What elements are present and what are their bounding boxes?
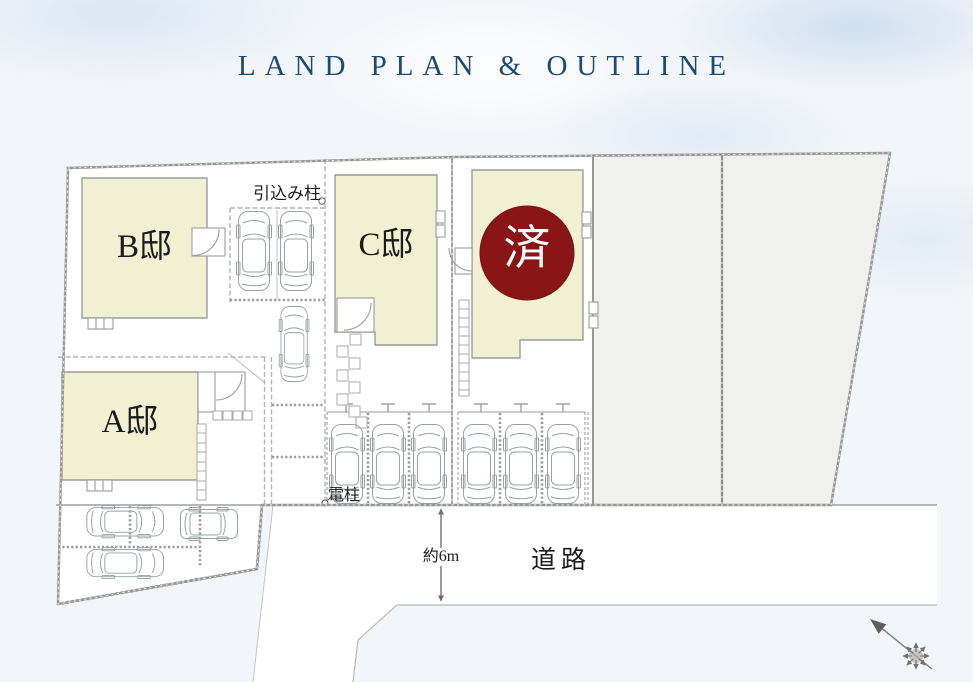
lot-b-label: B邸 xyxy=(82,229,207,265)
sold-badge-label: 済 xyxy=(480,224,574,276)
lot-a-label: A邸 xyxy=(62,404,198,440)
service-pole-label: 引込み柱 xyxy=(253,185,321,204)
land-plan-page: LAND PLAN & OUTLINE xyxy=(0,0,973,682)
vacant-lots xyxy=(593,153,890,505)
north-arrow-icon xyxy=(870,619,932,669)
lot-c-label: C邸 xyxy=(335,227,437,263)
utility-pole-label: 電柱 xyxy=(328,487,360,505)
site-plan-drawing xyxy=(0,0,973,682)
road-label: 道路 xyxy=(531,547,591,575)
road-width-label: 約6m xyxy=(414,548,468,566)
